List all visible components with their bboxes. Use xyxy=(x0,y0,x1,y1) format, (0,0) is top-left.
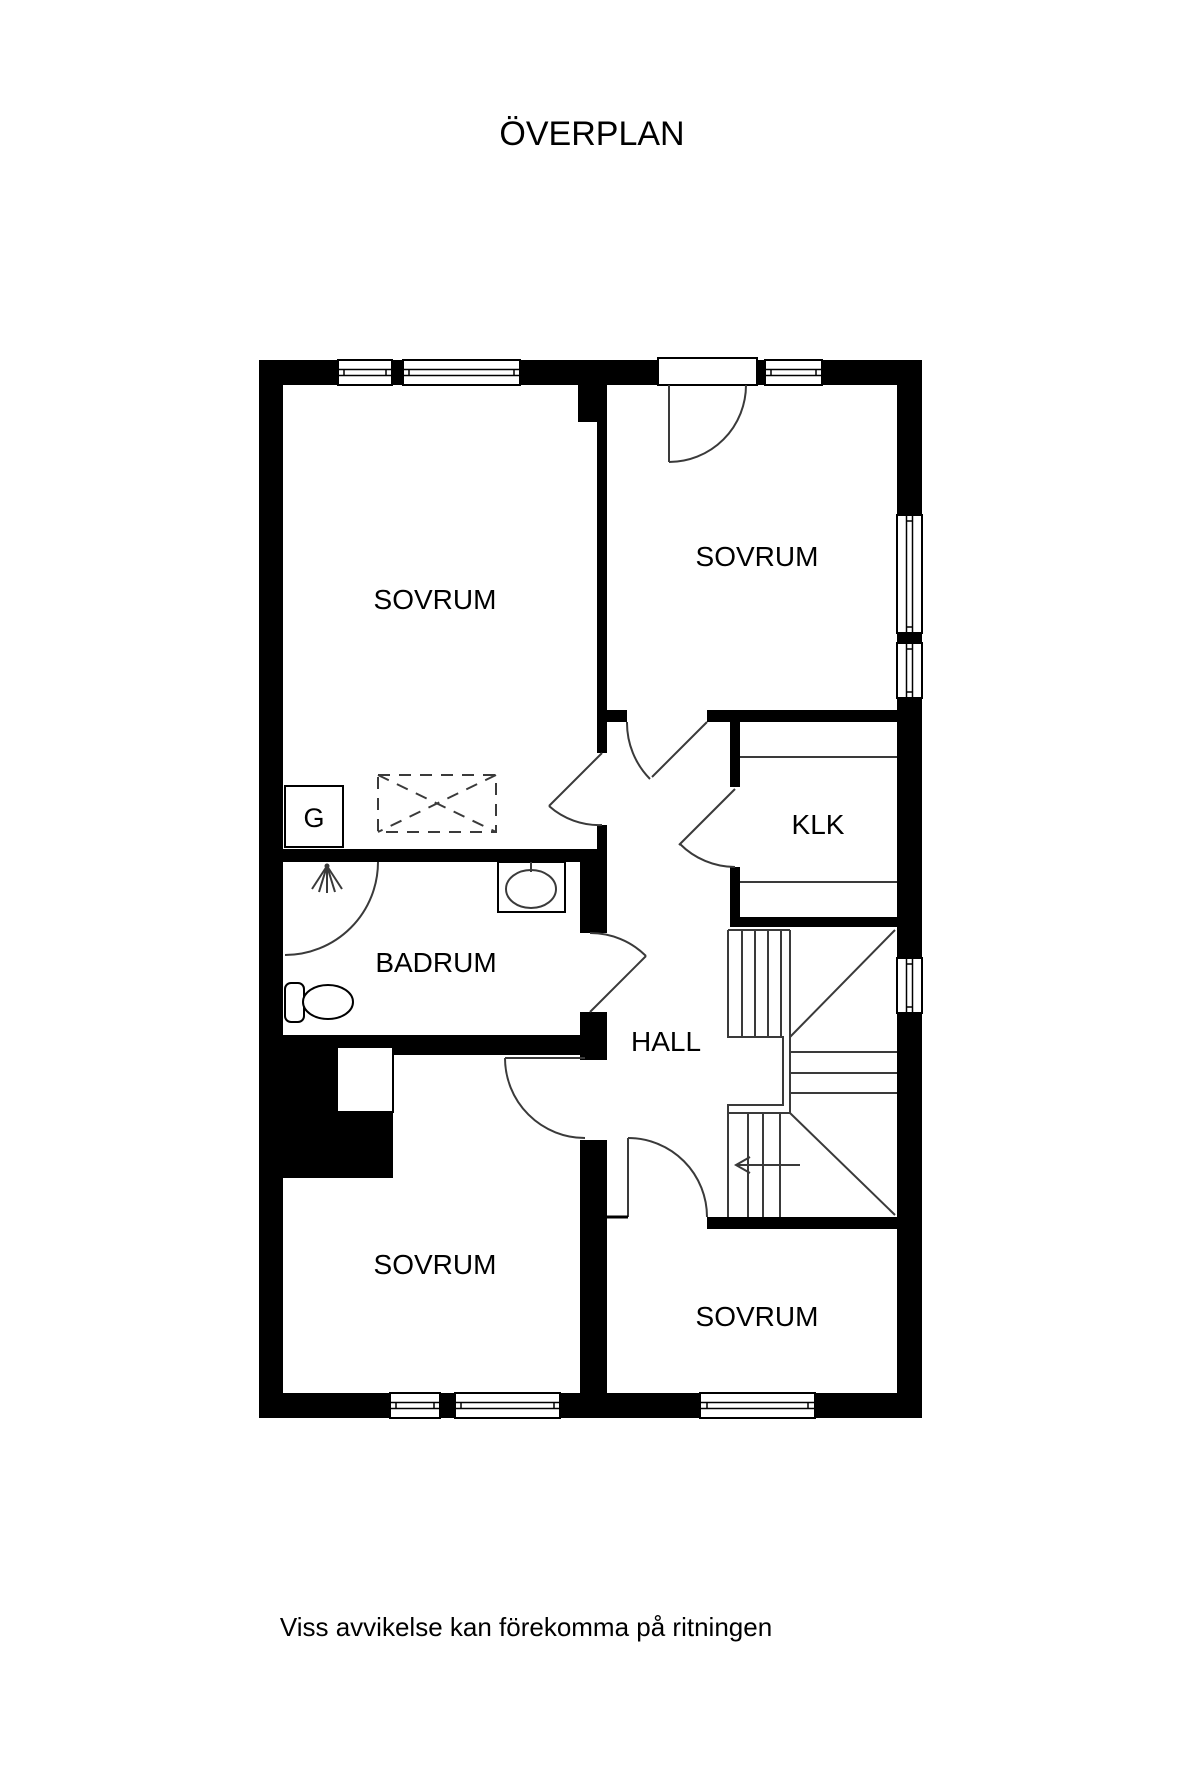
window-bottom-2 xyxy=(455,1393,560,1418)
shower-icon xyxy=(285,862,378,955)
doors xyxy=(505,358,757,1217)
window-bottom-3 xyxy=(700,1393,815,1418)
toilet-icon xyxy=(285,983,353,1022)
bedroom3-door xyxy=(505,1058,585,1138)
label-klk: KLK xyxy=(792,809,845,840)
window-bottom-1 xyxy=(390,1393,440,1418)
label-sovrum-bottom-left: SOVRUM xyxy=(374,1249,497,1280)
label-hall: HALL xyxy=(631,1026,701,1057)
page-title: ÖVERPLAN xyxy=(499,115,684,153)
bedroom4-door xyxy=(605,1138,707,1217)
entry-door xyxy=(658,358,757,462)
klk-door xyxy=(679,789,735,867)
window-right-1 xyxy=(897,515,922,633)
window-right-3 xyxy=(897,958,922,1013)
walls xyxy=(259,360,922,1418)
window-top-1 xyxy=(338,360,392,385)
disclaimer: Viss avvikelse kan förekomma på ritninge… xyxy=(280,1612,772,1642)
bedroom2-door xyxy=(627,722,707,779)
label-sovrum-bottom-right: SOVRUM xyxy=(696,1301,819,1332)
bedroom1-door xyxy=(549,753,602,825)
stair-direction-arrow xyxy=(736,1157,800,1173)
sink-icon xyxy=(498,862,565,912)
bathroom-door xyxy=(590,933,646,1012)
label-badrum: BADRUM xyxy=(375,947,496,978)
window-right-2 xyxy=(897,643,922,698)
floor-plan: SOVRUM SOVRUM BADRUM HALL KLK SOVRUM SOV… xyxy=(0,0,1187,1780)
staircase xyxy=(728,930,897,1217)
closet-niche xyxy=(337,1047,393,1112)
window-top-3 xyxy=(765,360,822,385)
bed-dashed-outline xyxy=(378,775,496,832)
page: SOVRUM SOVRUM BADRUM HALL KLK SOVRUM SOV… xyxy=(0,0,1187,1780)
label-sovrum-top-left: SOVRUM xyxy=(374,584,497,615)
label-closet-g: G xyxy=(303,803,324,833)
window-top-2 xyxy=(403,360,520,385)
label-sovrum-top-right: SOVRUM xyxy=(696,541,819,572)
